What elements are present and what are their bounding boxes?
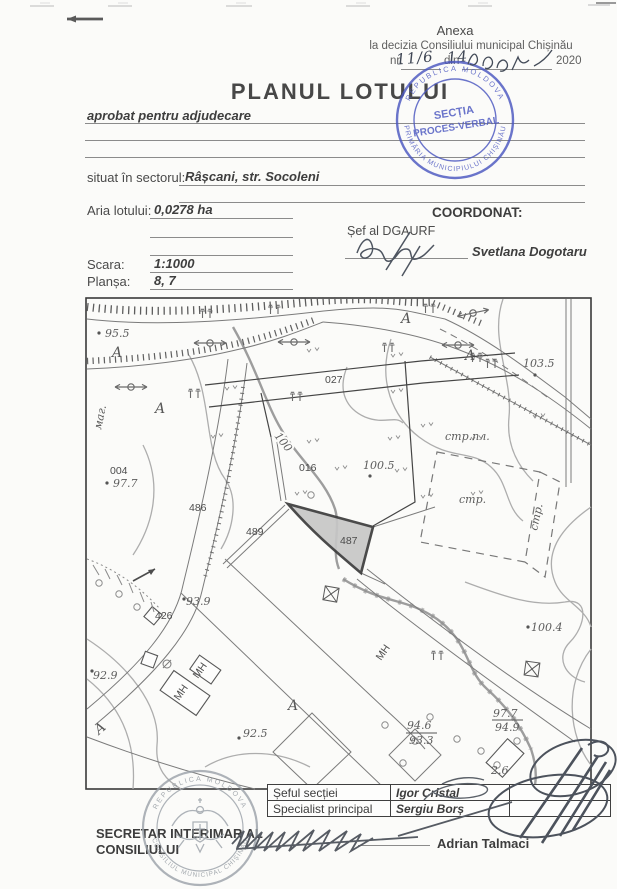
blank-line — [179, 202, 585, 203]
map-label: 93.3 — [409, 734, 434, 747]
approved-for-label: aprobat pentru adjudecare — [87, 108, 251, 123]
chief-signature — [357, 232, 434, 276]
map-label: 489 — [246, 526, 264, 538]
blank-line — [150, 237, 293, 238]
decision-line: la decizia Consiliului municipal Chișină… — [356, 40, 586, 52]
map-label: 027 — [325, 374, 343, 386]
street-lamp-icons — [115, 307, 489, 391]
role-cell: Șeful secției — [268, 785, 391, 801]
map-label: 92.5 — [243, 727, 268, 740]
blue-round-stamp: REPUBLICA MOLDOVA PRIMĂRIA MUNICIPIULUI … — [392, 57, 519, 184]
gray-municipal-seal: REPUBLICA MOLDOVA CONSILIUL MUNICIPAL CH… — [138, 766, 262, 889]
map-label: 487 — [340, 535, 358, 547]
area-underline — [150, 218, 293, 219]
area-label: Aria lotului: — [87, 203, 151, 218]
scan-noise — [30, 3, 610, 6]
sector-label: situat în sectorul: — [87, 170, 185, 185]
secretary-signature-line — [358, 845, 430, 846]
map-label: A — [153, 401, 165, 417]
sheet-label: Planșa: — [87, 274, 130, 289]
map-label: 100.4 — [531, 621, 563, 634]
sector-value: Râșcani, str. Socoleni — [185, 169, 319, 184]
map-label: 004 — [110, 465, 128, 477]
map-label: 94.9 — [495, 721, 520, 734]
stamp-center-line2: PROCES-VERBAL — [413, 115, 500, 139]
map-label: стр. — [527, 502, 545, 531]
name-cell: Sergiu Borș — [391, 801, 510, 817]
signature-cell — [510, 785, 611, 801]
area-value: 0,0278 ha — [154, 202, 213, 217]
approvals-table: Șeful secției Igor Cristal Specialist pr… — [267, 784, 611, 817]
chief-title: Șef al DGAURF — [347, 224, 435, 238]
stamp-ring-top: REPUBLICA MOLDOVA — [403, 64, 506, 102]
map-label: 93.9 — [186, 595, 211, 608]
page-title: PLANUL LOTULUI — [60, 79, 617, 105]
sheet-underline — [150, 289, 293, 290]
buildings — [141, 586, 540, 789]
year-text: 2020 — [556, 55, 582, 67]
utility-pole-icons — [188, 304, 498, 660]
map-label: 486 — [189, 502, 207, 514]
map-label: 100.5 — [363, 459, 395, 472]
map-label: маг. — [91, 404, 109, 431]
map-label: 97.7 — [113, 477, 138, 490]
map-label: 103.5 — [523, 357, 555, 370]
scanned-plan-document: Anexa la decizia Consiliului municipal C… — [0, 0, 617, 889]
secretary-name: Adrian Talmaci — [437, 836, 529, 851]
scale-value: 1:1000 — [154, 256, 194, 271]
map-label: A — [399, 311, 411, 327]
map-label: стр. — [459, 493, 486, 506]
coordonat-heading: COORDONAT: — [432, 205, 523, 220]
scan-mark-arrow — [67, 16, 76, 23]
scale-label: Scara: — [87, 257, 125, 272]
tree-symbols — [96, 492, 520, 768]
map-label: MH — [374, 642, 393, 662]
left-road-band — [87, 359, 255, 789]
sector-underline — [179, 185, 585, 186]
table-row: Șeful secției Igor Cristal — [268, 785, 611, 801]
grass-symbols — [211, 348, 545, 499]
map-label: 95.5 — [105, 327, 130, 340]
signature-cell — [510, 801, 611, 817]
anexa-heading: Anexa — [355, 23, 555, 38]
map-label: A — [110, 345, 122, 361]
map-label: 016 — [299, 462, 317, 474]
map-label: 2.6 — [490, 764, 509, 777]
map-label: 92.9 — [93, 669, 118, 682]
map-label: 426 — [155, 610, 173, 622]
cadastral-map: 95.5 A маг. A A A 103.5 027 100 016 100.… — [85, 297, 592, 790]
table-row: Specialist principal Sergiu Borș — [268, 801, 611, 817]
role-cell: Specialist principal — [268, 801, 391, 817]
map-label: 97.7 — [493, 707, 518, 720]
map-label: 100 — [272, 430, 295, 455]
sheet-value: 8, 7 — [154, 273, 176, 288]
map-label: A — [90, 719, 110, 739]
map-label: A — [463, 348, 475, 364]
lot-487-highlighted — [288, 504, 373, 573]
chief-name: Svetlana Dogotaru — [472, 244, 587, 259]
map-label: стр.пл. — [445, 430, 490, 443]
map-label: 94.6 — [407, 719, 432, 732]
map-label: A — [286, 698, 298, 714]
coat-of-arms-icon — [172, 798, 228, 852]
name-cell: Igor Cristal — [391, 785, 510, 801]
elevation-points — [90, 331, 536, 739]
chief-signature-line — [345, 258, 468, 259]
